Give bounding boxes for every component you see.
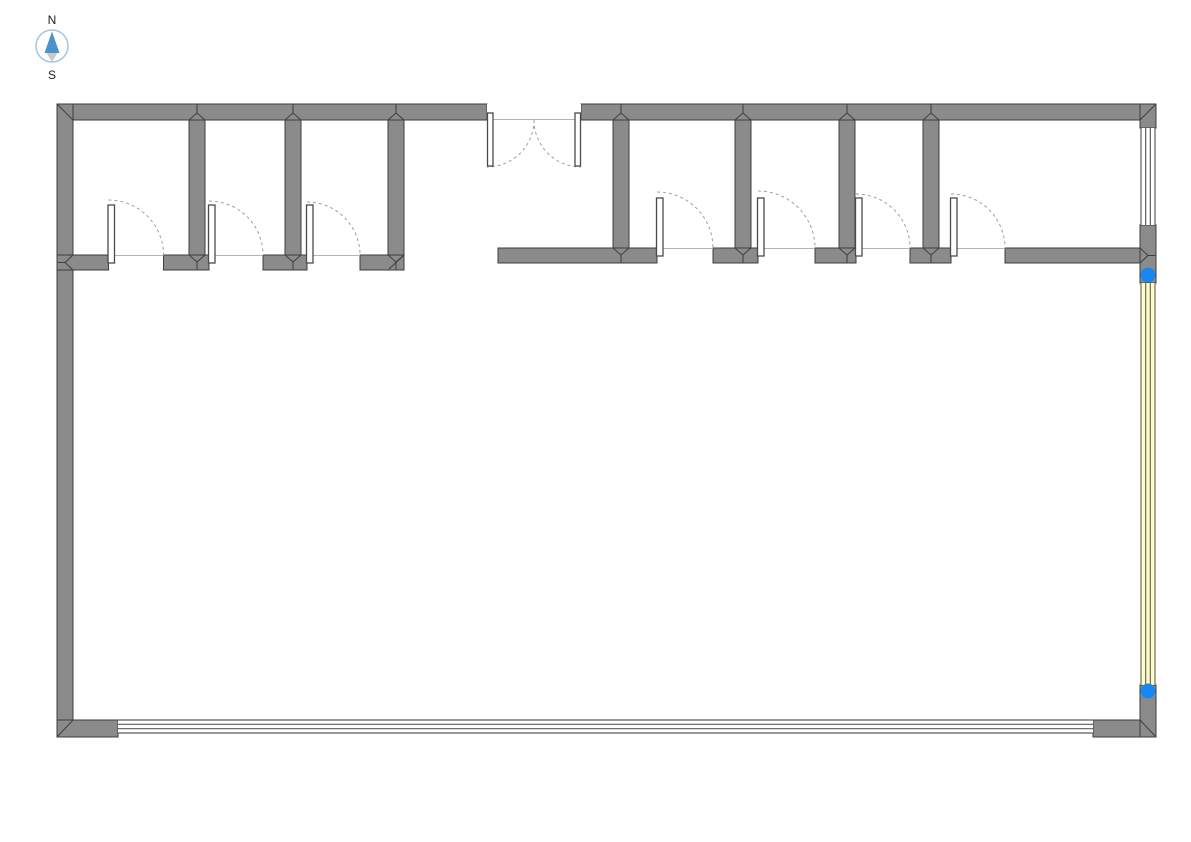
right-window-upper[interactable] [1141, 128, 1155, 225]
bottom-wall-right-block[interactable] [1093, 720, 1140, 737]
door-leaf [951, 198, 958, 256]
window-handle-top[interactable] [1141, 268, 1156, 283]
interior-wall-2[interactable] [285, 120, 301, 270]
interior-wall-4[interactable] [613, 120, 629, 263]
door-swing-arc [856, 194, 910, 248]
door-swing-arc-right [534, 120, 581, 167]
top-wall-left[interactable] [57, 104, 487, 120]
doors-layer [108, 104, 1005, 263]
door-leaf [758, 198, 765, 256]
compass-south-label: S [48, 68, 56, 82]
windows-layer [118, 128, 1155, 733]
right-window-selected[interactable] [1141, 283, 1155, 685]
door-swing-arc-left [487, 120, 534, 167]
door-leaf-right [575, 113, 581, 166]
door-leaf [209, 205, 216, 263]
interior-wall-5[interactable] [735, 120, 751, 263]
door-swing-arc [307, 202, 360, 255]
south-wall-right-3[interactable] [815, 248, 856, 263]
right-wall-top[interactable] [1140, 104, 1156, 128]
interior-wall-7[interactable] [923, 120, 939, 263]
door-room-4[interactable] [657, 192, 714, 256]
floor-plan-canvas: N S [0, 0, 1191, 842]
door-swing-arc [209, 201, 263, 255]
bottom-wall-left-block[interactable] [57, 720, 118, 737]
compass-north-label: N [48, 13, 57, 27]
door-room-5[interactable] [758, 191, 816, 256]
walls-layer [57, 104, 1156, 737]
window-glass-highlighted [1141, 283, 1155, 685]
south-wall-right-5[interactable] [1005, 248, 1140, 263]
door-swing-arc [109, 200, 164, 255]
door-opening [487, 104, 581, 120]
window-handle-bottom[interactable] [1141, 684, 1156, 699]
door-leaf [108, 205, 115, 263]
south-wall-right-1[interactable] [498, 248, 657, 263]
top-wall-right[interactable] [581, 104, 1156, 120]
window-glass [1141, 128, 1155, 225]
door-swing-arc [951, 194, 1005, 248]
interior-wall-3[interactable] [388, 120, 404, 270]
window-glass [118, 720, 1093, 733]
door-leaf-left [488, 113, 494, 166]
door-leaf [307, 205, 314, 263]
south-wall-right-2[interactable] [713, 248, 758, 263]
south-wall-left-4[interactable] [360, 255, 404, 270]
south-wall-left-3[interactable] [263, 255, 307, 270]
left-wall[interactable] [57, 104, 73, 737]
interior-wall-6[interactable] [839, 120, 855, 263]
door-room-7[interactable] [951, 194, 1006, 256]
door-leaf [657, 198, 664, 256]
door-room-2[interactable] [209, 201, 264, 263]
door-room-1[interactable] [108, 200, 164, 263]
door-room-6[interactable] [856, 194, 911, 256]
compass-icon: N S [36, 13, 68, 82]
door-swing-arc [758, 191, 815, 248]
wall-joint-marks-layer [57, 104, 1156, 737]
door-leaf [856, 198, 863, 256]
entrance-double-door[interactable] [487, 104, 581, 167]
door-room-3[interactable] [307, 202, 361, 263]
door-swing-arc [657, 192, 713, 248]
bottom-window[interactable] [118, 720, 1093, 733]
interior-wall-1[interactable] [189, 120, 205, 270]
